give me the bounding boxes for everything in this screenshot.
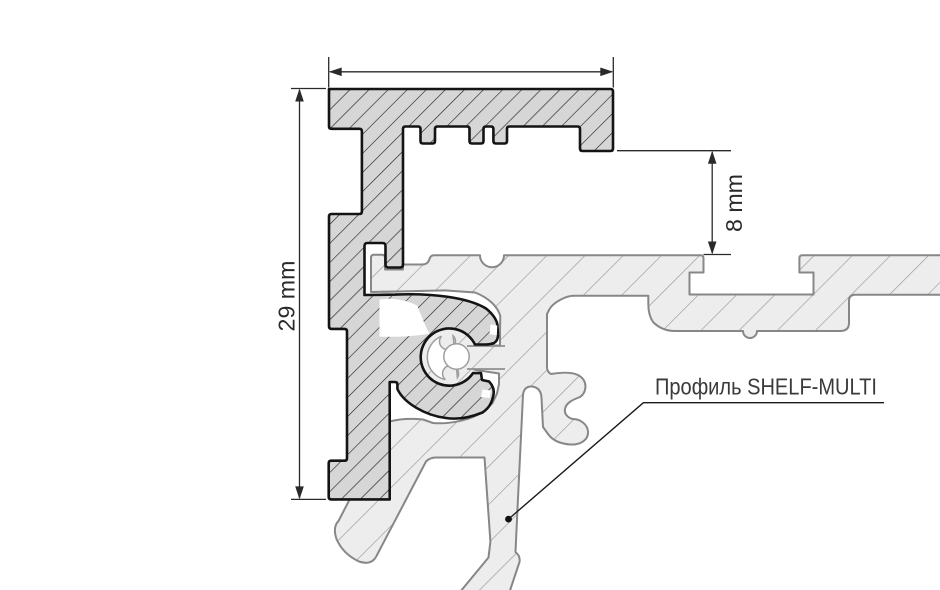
svg-text:29 mm: 29 mm	[274, 261, 300, 332]
svg-text:8 mm: 8 mm	[721, 174, 747, 232]
svg-text:Профиль SHELF-MULTI: Профиль SHELF-MULTI	[655, 373, 877, 399]
